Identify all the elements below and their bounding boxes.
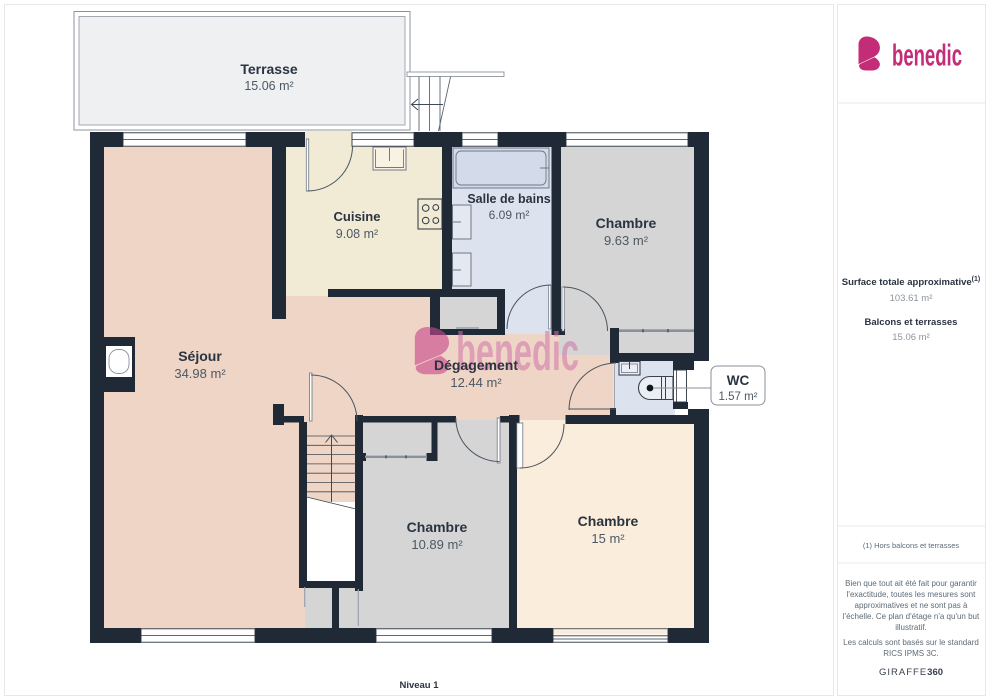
svg-text:benedic: benedic <box>892 38 962 73</box>
svg-text:103.61 m²: 103.61 m² <box>890 293 933 304</box>
svg-text:Balcons et terrasses: Balcons et terrasses <box>865 317 958 328</box>
svg-text:WC: WC <box>727 373 750 388</box>
svg-text:GIRAFFE360: GIRAFFE360 <box>879 667 943 678</box>
svg-text:Cuisine: Cuisine <box>334 209 381 224</box>
svg-text:12.44 m²: 12.44 m² <box>450 375 502 390</box>
svg-text:illustratif.: illustratif. <box>895 623 927 632</box>
svg-text:Terrasse: Terrasse <box>240 61 298 77</box>
svg-text:15 m²: 15 m² <box>591 531 625 546</box>
svg-text:10.89 m²: 10.89 m² <box>411 537 463 552</box>
svg-text:Niveau 1: Niveau 1 <box>399 680 439 691</box>
svg-text:34.98 m²: 34.98 m² <box>174 366 226 381</box>
svg-text:6.09 m²: 6.09 m² <box>489 208 530 222</box>
svg-text:9.63 m²: 9.63 m² <box>604 233 649 248</box>
svg-text:Dégagement: Dégagement <box>434 357 518 373</box>
svg-text:15.06 m²: 15.06 m² <box>244 79 293 93</box>
svg-text:Chambre: Chambre <box>407 519 468 535</box>
svg-text:Les calculs sont basés sur le: Les calculs sont basés sur le standard <box>843 638 979 647</box>
svg-text:Salle de bains: Salle de bains <box>467 192 550 206</box>
svg-text:Surface totale approximative(1: Surface totale approximative(1) <box>842 276 980 288</box>
svg-text:l'échelle. Ce plan d'étage n'a: l'échelle. Ce plan d'étage n'a qu'un but <box>843 612 980 621</box>
svg-text:Bien que tout ait été fait pou: Bien que tout ait été fait pour garantir <box>845 579 977 588</box>
svg-text:approximatives et ne sont pas: approximatives et ne sont pas à <box>855 601 969 610</box>
svg-text:l'exactitude, toutes les mesur: l'exactitude, toutes les mesures sont <box>847 590 976 599</box>
svg-text:15.06 m²: 15.06 m² <box>892 332 930 343</box>
svg-text:benedic: benedic <box>456 322 579 382</box>
svg-text:9.08 m²: 9.08 m² <box>336 227 378 241</box>
svg-text:Chambre: Chambre <box>578 513 639 529</box>
svg-text:(1) Hors balcons et terrasses: (1) Hors balcons et terrasses <box>863 541 960 550</box>
svg-text:RICS IPMS 3C.: RICS IPMS 3C. <box>883 649 939 658</box>
svg-text:1.57 m²: 1.57 m² <box>719 391 758 403</box>
svg-text:Séjour: Séjour <box>178 348 222 364</box>
svg-text:Chambre: Chambre <box>596 215 657 231</box>
